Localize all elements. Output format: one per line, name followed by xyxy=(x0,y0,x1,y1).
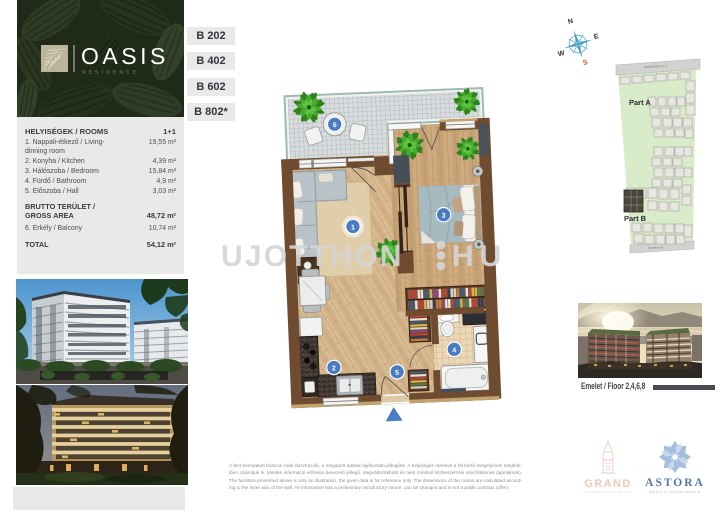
svg-text:W: W xyxy=(557,50,565,58)
svg-text:3: 3 xyxy=(442,213,446,220)
svg-text:Part A: Part A xyxy=(629,98,651,107)
svg-text:Szerémi út: Szerémi út xyxy=(648,245,663,250)
svg-text:GRAND: GRAND xyxy=(584,478,631,490)
svg-text:RESIDENCE: RESIDENCE xyxy=(82,70,139,75)
svg-text:E: E xyxy=(593,33,600,41)
svg-text:OASIS: OASIS xyxy=(81,43,169,69)
svg-text:2: 2 xyxy=(332,365,336,372)
svg-text:1: 1 xyxy=(351,224,355,231)
svg-text:S: S xyxy=(582,59,589,67)
svg-text:RESIDENCE APARTMENTS: RESIDENCE APARTMENTS xyxy=(584,491,631,494)
svg-text:ASTORA: ASTORA xyxy=(645,477,705,489)
svg-text:Part B: Part B xyxy=(624,214,647,223)
svg-text:4: 4 xyxy=(452,347,456,354)
svg-text:6: 6 xyxy=(333,122,337,129)
svg-text:5: 5 xyxy=(395,370,399,377)
svg-text:N: N xyxy=(567,18,574,26)
svg-text:REALTY INVESTMENTS: REALTY INVESTMENTS xyxy=(649,490,700,494)
